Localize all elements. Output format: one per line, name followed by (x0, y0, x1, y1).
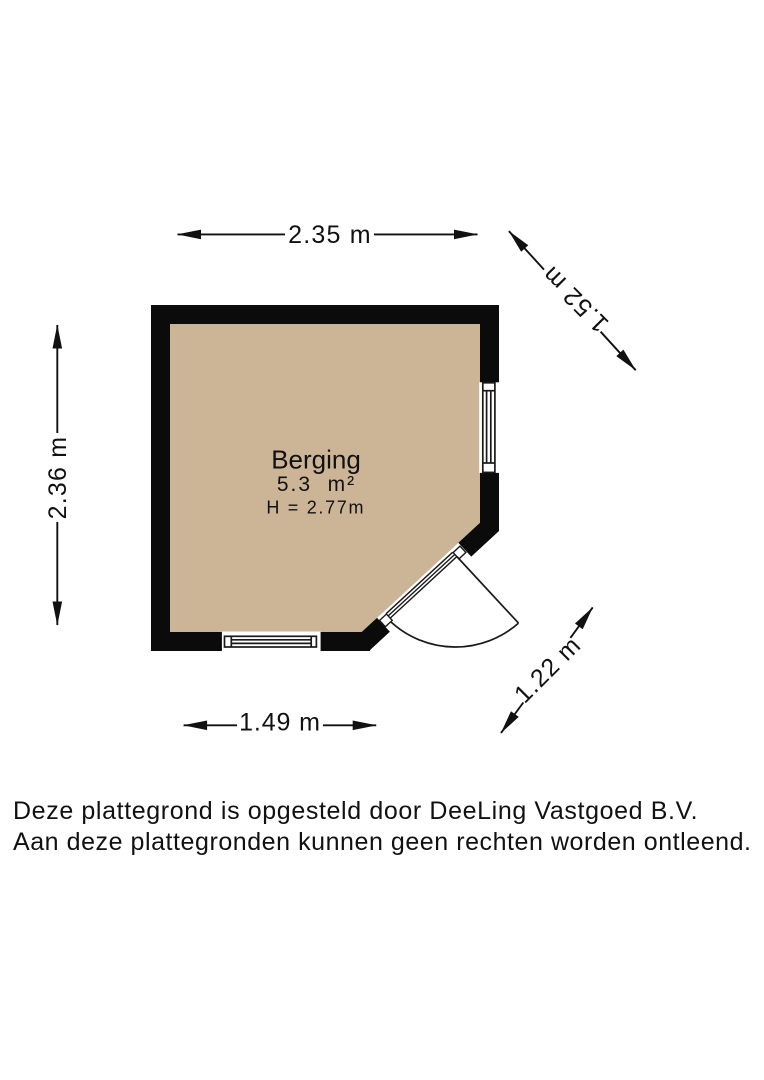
svg-text:2.35 m: 2.35 m (288, 221, 372, 249)
svg-text:1.52 m: 1.52 m (537, 260, 615, 338)
svg-text:2.36 m: 2.36 m (44, 436, 72, 520)
svg-text:Berging: Berging (271, 445, 361, 475)
svg-text:Aan deze plattegronden kunnen: Aan deze plattegronden kunnen geen recht… (13, 828, 752, 856)
svg-text:1.49 m: 1.49 m (239, 709, 321, 737)
svg-text:1.22 m: 1.22 m (509, 631, 587, 709)
svg-text:H = 2.77m: H = 2.77m (266, 497, 365, 517)
svg-text:5.3 m²: 5.3 m² (277, 473, 356, 496)
svg-text:Deze plattegrond is opgesteld: Deze plattegrond is opgesteld door DeeLi… (13, 797, 698, 825)
